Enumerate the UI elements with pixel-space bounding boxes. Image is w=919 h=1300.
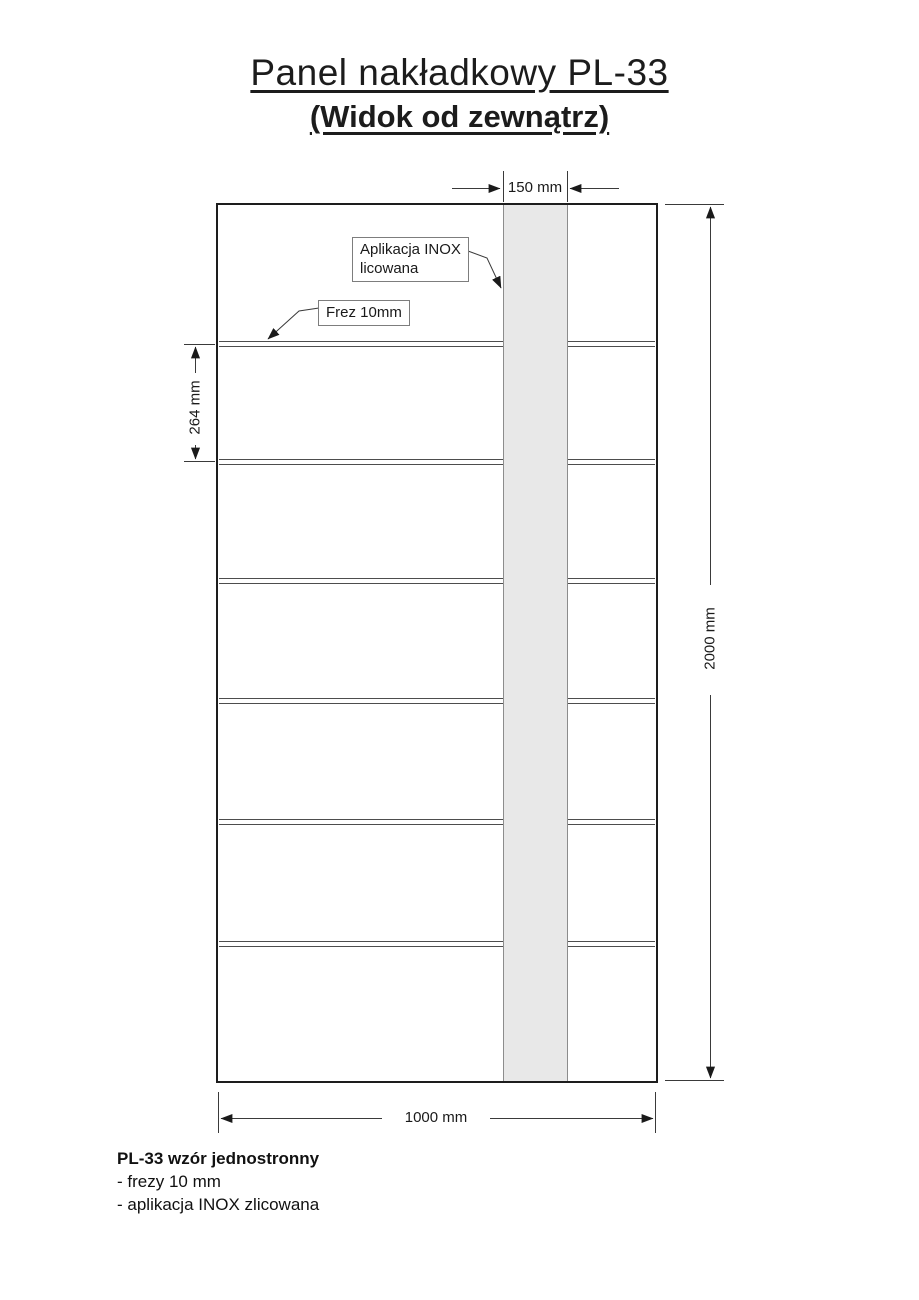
leader-line — [468, 251, 501, 288]
inox-callout: Aplikacja INOX licowana — [352, 237, 469, 282]
inox-callout-line1: Aplikacja INOX — [360, 240, 461, 259]
panel-drawing: 150 mm 264 mm 2000 mm 1000 mm Aplikacja … — [0, 0, 919, 1300]
notes-item: - frezy 10 mm — [117, 1170, 319, 1193]
frez-callout: Frez 10mm — [318, 300, 410, 326]
dimension-panel-height: 2000 mm — [702, 589, 719, 689]
notes-item: - aplikacja INOX zlicowana — [117, 1193, 319, 1216]
drawing-sheet: Panel nakładkowy PL-33 (Widok od zewnątr… — [0, 0, 919, 1300]
dimension-panel-width: 1000 mm — [386, 1109, 486, 1126]
inox-callout-line2: licowana — [360, 259, 461, 278]
dimension-stripe-width: 150 mm — [499, 179, 571, 196]
leader-line — [268, 308, 319, 339]
dimension-groove-pitch: 264 mm — [187, 363, 204, 453]
dimension-linework — [0, 0, 919, 1300]
frez-callout-label: Frez 10mm — [326, 304, 402, 321]
notes-block: PL-33 wzór jednostronny - frezy 10 mm - … — [117, 1147, 319, 1216]
notes-heading: PL-33 wzór jednostronny — [117, 1147, 319, 1170]
